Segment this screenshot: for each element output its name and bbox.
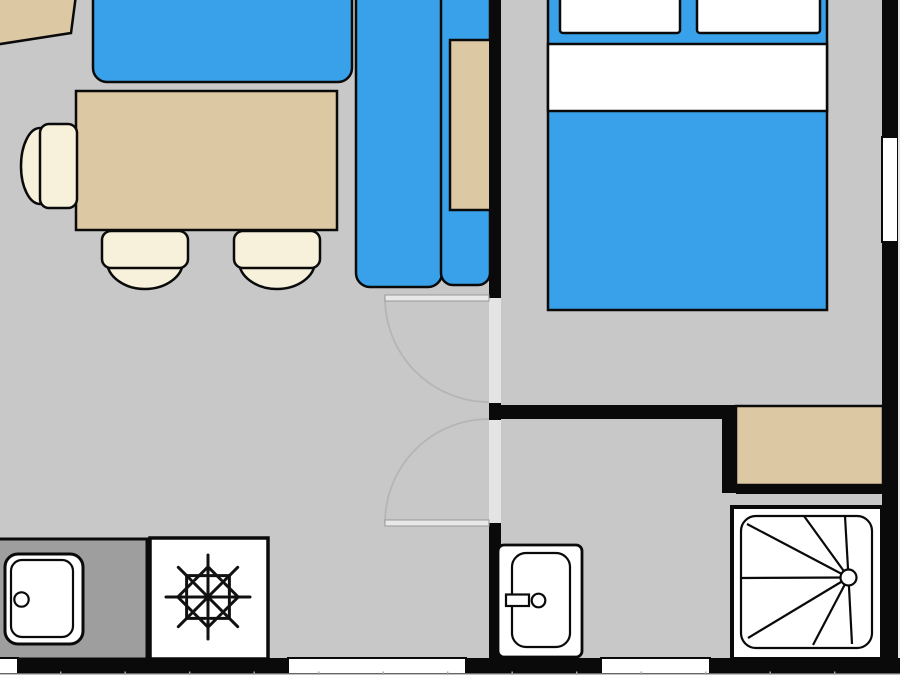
chair-head-seat — [40, 124, 77, 208]
bottom-ruler-ticks-tick-11 — [770, 672, 771, 675]
bottom-ruler-ticks-tick-4 — [318, 672, 319, 675]
bottom-ruler-ticks-tick-5 — [383, 672, 384, 675]
bed-pillow-left — [560, 0, 680, 33]
bottom-ruler-ticks-tick-8 — [576, 672, 577, 675]
sofa-chaise-seat — [356, 0, 442, 287]
wall-center-upper — [489, 0, 501, 298]
closet-counter — [736, 406, 883, 485]
chair-1-seat — [102, 231, 188, 268]
chair-2-seat — [234, 231, 320, 268]
bottom-ruler-ticks-tick-10 — [705, 672, 706, 675]
window-bottom-left — [0, 658, 18, 674]
shower-spray-icon-ray-1 — [742, 578, 849, 579]
door-leaf-upper — [385, 295, 489, 301]
window-bottom-2 — [288, 658, 466, 674]
door-gap-lower — [489, 420, 501, 523]
bottom-ruler-ticks-tick-0 — [60, 672, 61, 675]
wall-right-upper — [882, 0, 898, 137]
bottom-ruler-ticks-tick-6 — [447, 672, 448, 675]
window-right — [882, 137, 898, 242]
shower-drain — [841, 570, 857, 586]
floor-plan — [0, 0, 900, 675]
bottom-ruler-ticks-tick-12 — [834, 672, 835, 675]
bed-pillow-right — [697, 0, 820, 33]
wall-bath-jog — [722, 405, 736, 493]
dining-table — [76, 91, 337, 230]
sofa-top — [93, 0, 352, 82]
window-bottom-3 — [601, 658, 710, 674]
floor-plan-svg — [0, 0, 900, 675]
wall-bottom-2 — [466, 658, 601, 674]
door-leaf-lower — [385, 520, 489, 526]
bottom-ruler-ticks-tick-7 — [512, 672, 513, 675]
bed-sheet — [548, 44, 827, 111]
snowflake-icon — [166, 555, 250, 639]
toilet-flush-lever — [506, 595, 529, 607]
bottom-ruler-ticks-tick-2 — [189, 672, 190, 675]
bottom-ruler-ticks-tick-9 — [641, 672, 642, 675]
bottom-ruler-ticks-tick-3 — [254, 672, 255, 675]
wall-right-lower — [882, 242, 898, 675]
sink-faucet — [14, 592, 28, 606]
shower-tray — [732, 507, 882, 659]
wall-bath-top — [498, 405, 736, 419]
toilet-flush-button — [532, 594, 546, 608]
bottom-ruler-ticks-tick-1 — [125, 672, 126, 675]
door-gap-upper — [489, 298, 501, 403]
wall-bottom-1 — [17, 658, 288, 674]
